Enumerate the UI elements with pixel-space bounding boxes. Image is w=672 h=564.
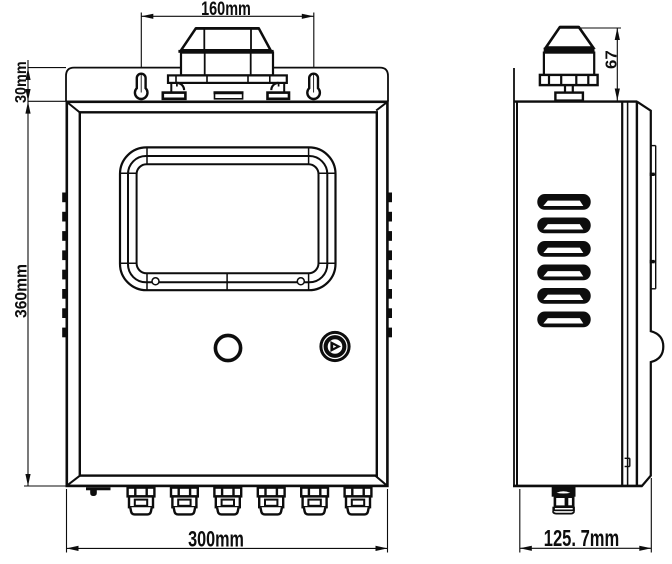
svg-text:160mm: 160mm (201, 0, 251, 19)
svg-text:300mm: 300mm (188, 527, 244, 552)
svg-text:360mm: 360mm (12, 264, 30, 318)
svg-text:67: 67 (603, 50, 621, 69)
svg-text:125. 7mm: 125. 7mm (544, 526, 619, 551)
svg-text:30mm: 30mm (12, 61, 30, 103)
